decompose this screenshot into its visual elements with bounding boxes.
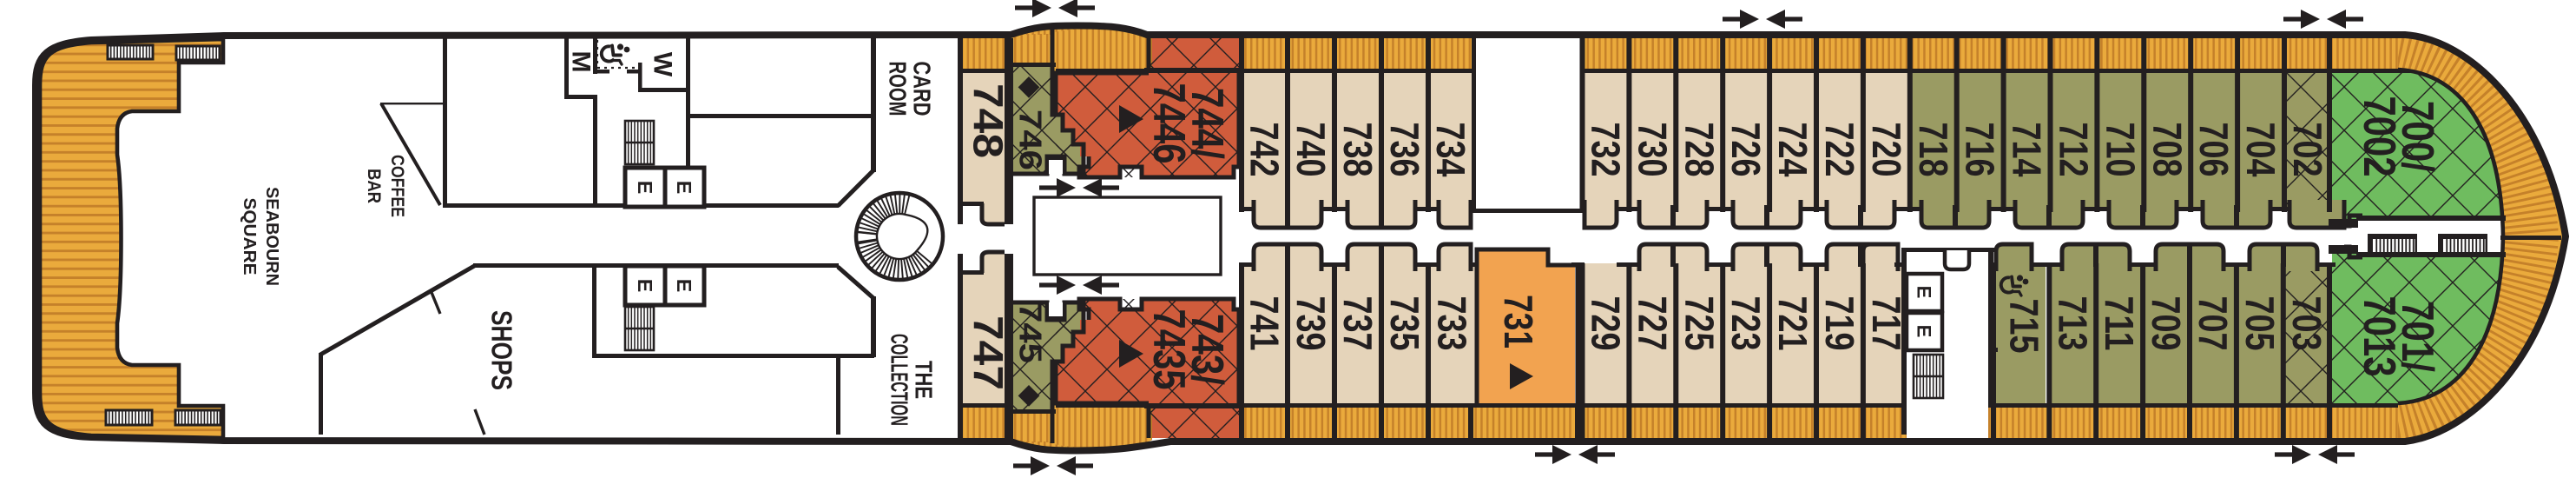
svg-text:7446: 7446: [1143, 83, 1194, 164]
svg-text:747: 747: [965, 315, 1011, 390]
svg-text:E: E: [673, 181, 695, 194]
svg-text:719: 719: [1817, 296, 1862, 351]
svg-text:741: 741: [1242, 296, 1288, 351]
svg-text:717: 717: [1864, 296, 1909, 351]
svg-text:713: 713: [2050, 296, 2095, 351]
svg-text:745: 745: [1013, 302, 1049, 363]
svg-text:COLLECTION: COLLECTION: [886, 334, 913, 426]
svg-text:733: 733: [1430, 296, 1475, 351]
svg-text:707: 707: [2191, 296, 2236, 351]
svg-text:714: 714: [2005, 123, 2050, 177]
svg-text:739: 739: [1288, 296, 1334, 351]
svg-text:703: 703: [2284, 296, 2329, 351]
svg-text:E: E: [634, 181, 656, 194]
svg-text:742: 742: [1242, 123, 1288, 177]
svg-text:738: 738: [1335, 123, 1380, 177]
svg-text:M: M: [567, 51, 596, 73]
svg-text:704: 704: [2238, 123, 2283, 177]
svg-text:746: 746: [1013, 110, 1049, 170]
svg-text:716: 716: [1958, 123, 2003, 177]
svg-text:722: 722: [1817, 123, 1862, 177]
svg-text:720: 720: [1864, 123, 1909, 177]
svg-text:737: 737: [1335, 296, 1380, 351]
svg-text:721: 721: [1770, 296, 1815, 351]
svg-text:705: 705: [2237, 296, 2283, 351]
svg-text:730: 730: [1630, 123, 1675, 177]
svg-text:702: 702: [2285, 123, 2330, 177]
svg-text:728: 728: [1677, 123, 1722, 177]
svg-text:706: 706: [2191, 123, 2237, 177]
svg-text:E: E: [634, 279, 656, 292]
svg-text:729: 729: [1583, 296, 1628, 351]
svg-text:732: 732: [1583, 123, 1628, 177]
svg-text:724: 724: [1770, 123, 1815, 177]
svg-text:712: 712: [2051, 123, 2096, 177]
svg-text:7013: 7013: [2354, 296, 2404, 377]
svg-text:7435: 7435: [1143, 309, 1194, 390]
svg-text:SEABOURN: SEABOURN: [262, 187, 281, 286]
svg-text:E: E: [1914, 325, 1935, 338]
svg-text:BAR: BAR: [364, 169, 384, 203]
svg-text:CARD: CARD: [909, 62, 936, 116]
svg-text:727: 727: [1630, 296, 1675, 351]
svg-text:734: 734: [1428, 123, 1473, 177]
svg-text:THE: THE: [911, 361, 938, 399]
svg-text:SHOPS: SHOPS: [486, 310, 518, 390]
svg-text:725: 725: [1677, 296, 1722, 351]
svg-text:736: 736: [1382, 123, 1427, 177]
svg-text:731: 731: [1496, 295, 1541, 349]
svg-text:711: 711: [2097, 296, 2142, 351]
svg-text:709: 709: [2144, 296, 2189, 351]
svg-text:718: 718: [1911, 123, 1956, 177]
svg-text:W: W: [649, 52, 677, 77]
svg-text:708: 708: [2144, 123, 2190, 177]
svg-text:COFFEE: COFFEE: [387, 155, 407, 217]
svg-text:7002: 7002: [2354, 96, 2404, 177]
svg-text:723: 723: [1723, 296, 1769, 351]
svg-text:710: 710: [2098, 123, 2143, 177]
svg-text:735: 735: [1382, 296, 1427, 351]
svg-text:E: E: [673, 279, 695, 292]
svg-text:715: 715: [2002, 299, 2047, 354]
svg-text:SQUARE: SQUARE: [240, 198, 259, 276]
svg-text:ROOM: ROOM: [885, 62, 912, 116]
svg-text:726: 726: [1723, 123, 1769, 177]
svg-text:748: 748: [965, 83, 1011, 158]
svg-text:E: E: [1914, 286, 1935, 299]
svg-text:740: 740: [1288, 123, 1334, 177]
